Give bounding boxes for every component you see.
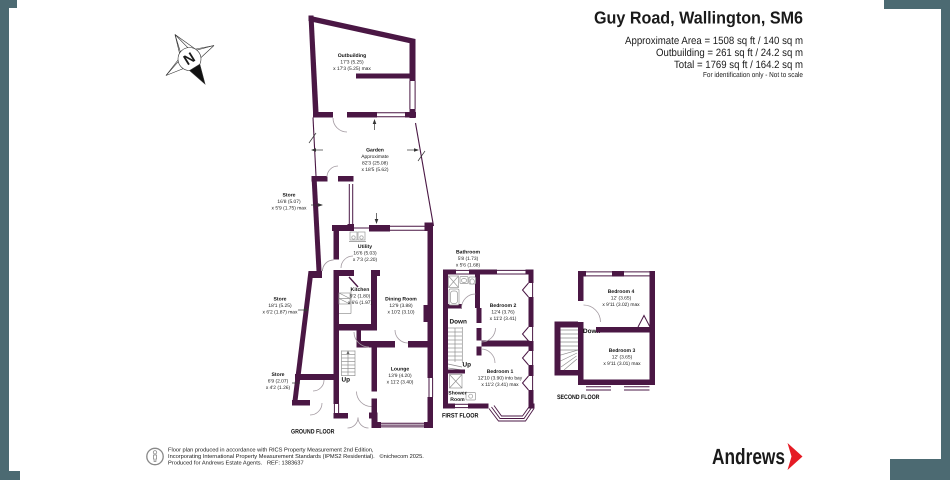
svg-text:13'9 (4.20): 13'9 (4.20) — [388, 373, 412, 379]
svg-text:x 6'6 (1.97): x 6'6 (1.97) — [348, 300, 373, 306]
svg-text:82'3 (25.08): 82'3 (25.08) — [362, 161, 388, 167]
svg-text:12' (3.65): 12' (3.65) — [612, 355, 633, 361]
svg-text:GROUND FLOOR: GROUND FLOOR — [291, 429, 335, 436]
svg-text:12' (3.65): 12' (3.65) — [611, 296, 632, 302]
svg-text:Garden: Garden — [366, 148, 384, 154]
svg-text:Store: Store — [282, 193, 295, 199]
svg-text:Outbuilding = 261 sq ft / 24.2: Outbuilding = 261 sq ft / 24.2 sq m — [656, 47, 803, 59]
svg-text:x 5'9 (1.75) max: x 5'9 (1.75) max — [272, 206, 307, 212]
svg-text:Approximate Area = 1508 sq ft: Approximate Area = 1508 sq ft / 140 sq m — [625, 35, 803, 47]
svg-text:x 11'2 (3.40): x 11'2 (3.40) — [387, 380, 414, 386]
svg-text:Dining Room: Dining Room — [385, 297, 417, 303]
svg-text:x 7'3 (2.20): x 7'3 (2.20) — [353, 257, 378, 263]
svg-text:Guy Road, Wallington, SM6: Guy Road, Wallington, SM6 — [594, 8, 803, 28]
svg-text:Up: Up — [342, 377, 351, 384]
svg-text:x 4'2 (1.26): x 4'2 (1.26) — [266, 385, 291, 391]
svg-text:12'9 (3.88): 12'9 (3.88) — [389, 303, 413, 309]
svg-text:Utility: Utility — [358, 244, 372, 250]
svg-text:Store: Store — [271, 372, 284, 378]
svg-text:Up: Up — [463, 362, 472, 369]
svg-text:FIRST FLOOR: FIRST FLOOR — [442, 413, 479, 420]
svg-text:Floor plan produced in accorda: Floor plan produced in accordance with R… — [168, 447, 374, 454]
svg-text:16'6 (5.03): 16'6 (5.03) — [353, 251, 377, 257]
svg-text:Lounge: Lounge — [391, 367, 410, 373]
svg-text:18'1 (5.25): 18'1 (5.25) — [268, 303, 292, 309]
svg-text:Bedroom 2: Bedroom 2 — [490, 303, 517, 309]
svg-text:For identification only - Not: For identification only - Not to scale — [703, 70, 803, 79]
svg-text:16'8 (5.07): 16'8 (5.07) — [277, 199, 301, 205]
svg-text:Incorporating International Pr: Incorporating International Property Mea… — [168, 453, 424, 460]
svg-text:Outbuilding: Outbuilding — [338, 53, 367, 59]
svg-text:x 11'2 (3.41) max: x 11'2 (3.41) max — [481, 382, 519, 388]
svg-text:x 11'2 (3.41): x 11'2 (3.41) — [490, 316, 517, 322]
svg-text:x 18'5 (5.62): x 18'5 (5.62) — [361, 167, 388, 173]
svg-text:Shower: Shower — [448, 391, 466, 397]
svg-text:x 17'3 (5.25) max: x 17'3 (5.25) max — [333, 66, 371, 72]
svg-text:17'3 (5.25): 17'3 (5.25) — [340, 60, 364, 66]
svg-text:Down: Down — [450, 319, 467, 326]
svg-text:Bedroom 1: Bedroom 1 — [487, 369, 514, 375]
svg-text:12'4 (3.76): 12'4 (3.76) — [491, 310, 515, 316]
svg-text:Approximate: Approximate — [361, 154, 389, 160]
svg-text:x 9'11 (3.01) max: x 9'11 (3.01) max — [603, 361, 641, 367]
svg-text:Kitchen: Kitchen — [351, 287, 370, 293]
svg-text:Store: Store — [273, 297, 286, 303]
svg-text:SECOND FLOOR: SECOND FLOOR — [557, 394, 600, 401]
svg-text:9'2 (1.80): 9'2 (1.80) — [350, 294, 371, 300]
svg-text:12'10 (3.90) into bay: 12'10 (3.90) into bay — [478, 376, 523, 382]
svg-text:x 10'2 (3.10): x 10'2 (3.10) — [387, 310, 414, 316]
svg-text:Produced for Andrews Estate Ag: Produced for Andrews Estate Agents. REF:… — [168, 460, 304, 467]
svg-text:6'9 (2.07): 6'9 (2.07) — [268, 379, 289, 385]
svg-text:Bedroom 3: Bedroom 3 — [609, 348, 636, 354]
svg-text:x 5'6 (1.68): x 5'6 (1.68) — [456, 263, 481, 269]
svg-text:5'8 (1.73): 5'8 (1.73) — [458, 256, 479, 262]
svg-text:Room: Room — [450, 397, 465, 403]
svg-text:Andrews: Andrews — [712, 444, 785, 469]
svg-text:Bedroom 4: Bedroom 4 — [608, 289, 635, 295]
svg-text:x 9'11 (3.02) max: x 9'11 (3.02) max — [602, 302, 640, 308]
svg-text:Bathroom: Bathroom — [456, 250, 481, 256]
svg-text:x 6'2 (1.87) max: x 6'2 (1.87) max — [263, 310, 298, 316]
